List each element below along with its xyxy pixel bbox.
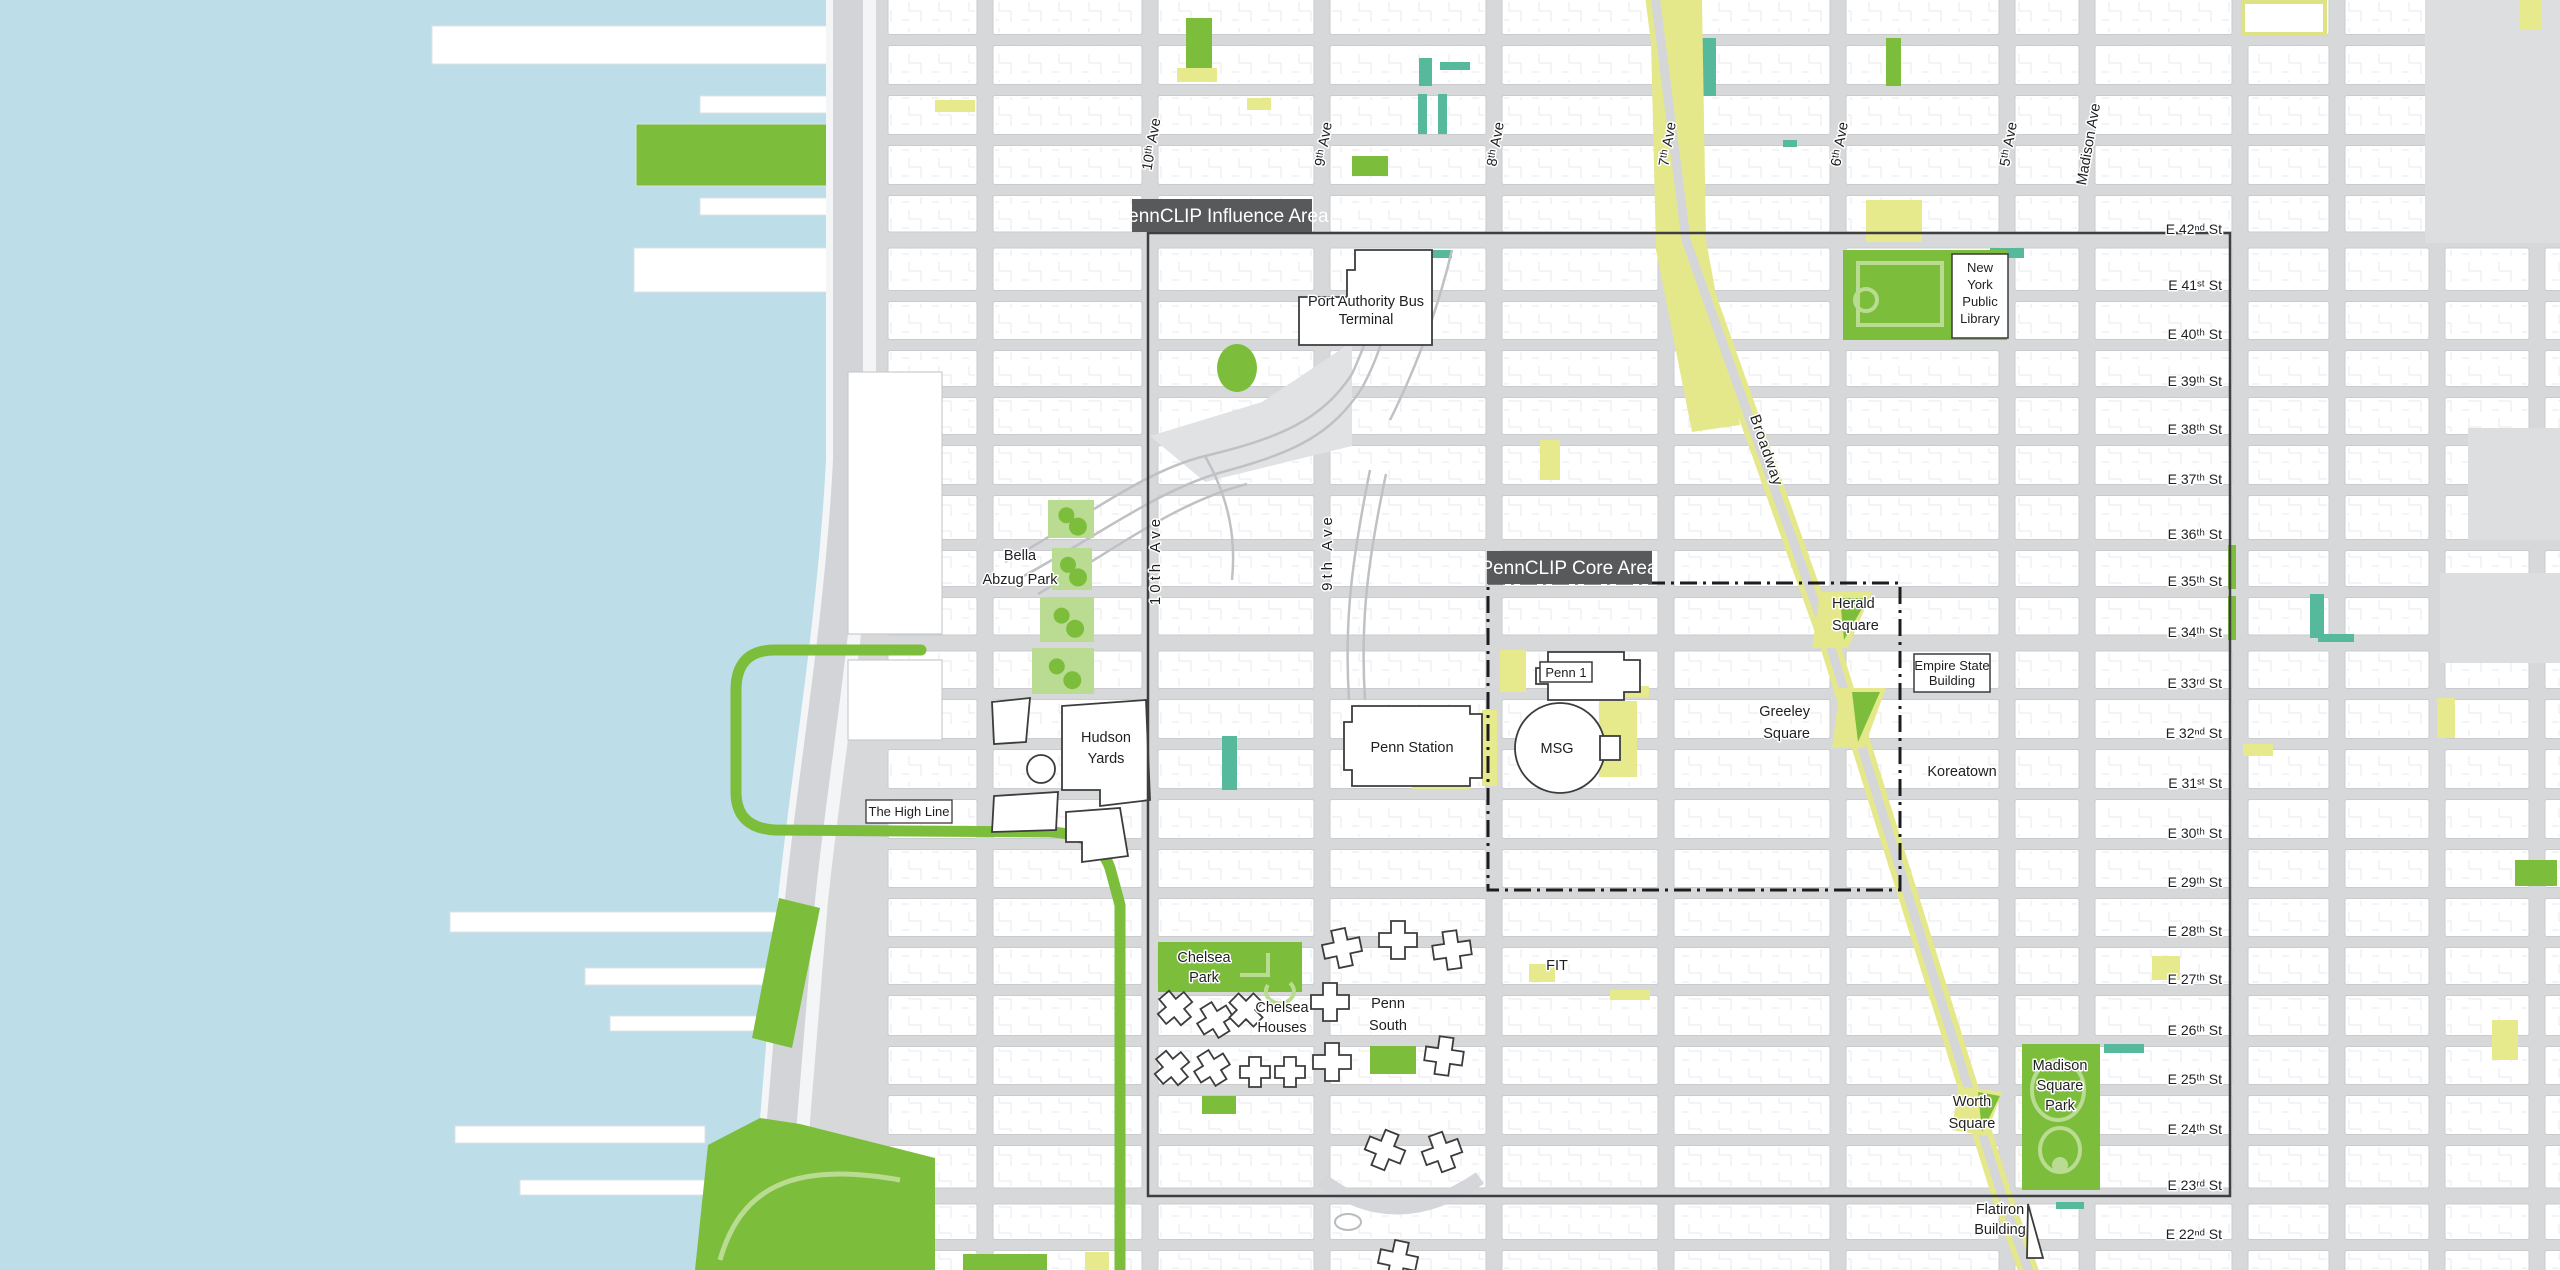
street-label: E 30ᵗʰ St bbox=[2168, 825, 2222, 841]
street-label: E 26ᵗʰ St bbox=[2168, 1022, 2222, 1038]
influence-label-text: PennCLIP Influence Area bbox=[1115, 206, 1328, 227]
street-label: E 33ʳᵈ St bbox=[2167, 675, 2222, 691]
street-label: E 23ʳᵈ St bbox=[2167, 1177, 2222, 1193]
street-label: E 37ᵗʰ St bbox=[2168, 471, 2222, 487]
street-label: E 34ᵗʰ St bbox=[2168, 624, 2222, 640]
street-label: E 36ᵗʰ St bbox=[2168, 526, 2222, 542]
street-label: E 42ⁿᵈ St bbox=[2166, 221, 2222, 237]
place-label-msg: MSG bbox=[1540, 741, 1573, 757]
place-label-penn_station: Penn Station bbox=[1370, 740, 1453, 756]
place-label-penn1: Penn 1 bbox=[1545, 665, 1586, 680]
street-label: E 29ᵗʰ St bbox=[2168, 874, 2222, 890]
street-label: E 35ᵗʰ St bbox=[2168, 573, 2222, 589]
street-label: E 38ᵗʰ St bbox=[2168, 421, 2222, 437]
map-viewport: E 42ⁿᵈ StE 41ˢᵗ StE 40ᵗʰ StE 39ᵗʰ StE 38… bbox=[0, 0, 2560, 1270]
street-label: E 41ˢᵗ St bbox=[2168, 277, 2222, 293]
midtown-map: E 42ⁿᵈ StE 41ˢᵗ StE 40ᵗʰ StE 39ᵗʰ StE 38… bbox=[0, 0, 2560, 1270]
region-label-influence: PennCLIP Influence Area bbox=[1115, 199, 1328, 232]
street-label: E 32ⁿᵈ St bbox=[2166, 725, 2222, 741]
street-label: E 27ᵗʰ St bbox=[2168, 971, 2222, 987]
street-label: E 22ⁿᵈ St bbox=[2166, 1226, 2222, 1242]
core-label-text: PennCLIP Core Area bbox=[1480, 558, 1658, 579]
street-label: E 31ˢᵗ St bbox=[2168, 775, 2222, 791]
street-label: E 24ᵗʰ St bbox=[2168, 1121, 2222, 1137]
blocks-layer bbox=[888, 0, 2560, 1270]
street-label: E 28ᵗʰ St bbox=[2168, 923, 2222, 939]
street-label: E 40ᵗʰ St bbox=[2168, 326, 2222, 342]
water-layer bbox=[0, 0, 840, 1270]
place-label-fit: FIT bbox=[1546, 958, 1568, 974]
street-label: E 39ᵗʰ St bbox=[2168, 373, 2222, 389]
avenue-label-mid: 10th Ave bbox=[1147, 515, 1164, 605]
avenue-label-mid: 9th Ave bbox=[1319, 513, 1336, 591]
place-label-highline: The High Line bbox=[869, 804, 950, 819]
region-label-core: PennCLIP Core Area bbox=[1480, 551, 1658, 584]
place-label-koreatown: Koreatown bbox=[1927, 764, 1996, 780]
street-label: E 25ᵗʰ St bbox=[2168, 1071, 2222, 1087]
